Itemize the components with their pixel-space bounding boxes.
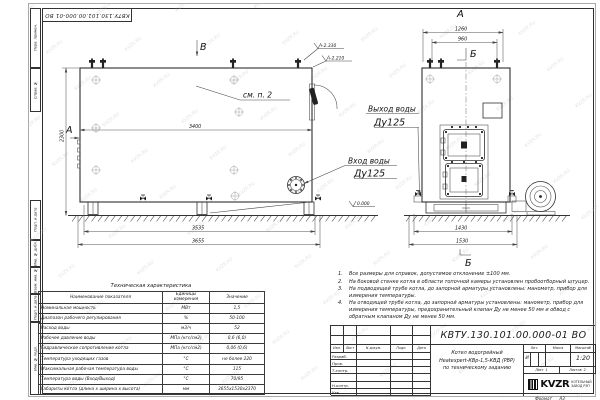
sign-row-cell — [413, 389, 431, 396]
note-ref-text: см. п. 2 — [243, 91, 272, 100]
revision-cell — [391, 336, 413, 346]
sign-row-cell — [357, 382, 391, 389]
tech-table-rows: Номинальная мощностьМВт1,5Диапазон рабоч… — [39, 303, 265, 395]
col-header-units: Единицы измерения — [163, 291, 210, 303]
lit-cell-3 — [539, 352, 546, 367]
note-item: 3. На подводящей трубе котла, до запорно… — [338, 286, 594, 299]
front-view-title: А — [456, 9, 464, 20]
note-item: 2. На боковой стенке котла в области топ… — [338, 279, 594, 286]
sign-row-cell — [357, 360, 391, 367]
rev-header-list: Лист — [344, 345, 357, 353]
dim-1430-text: 1430 — [455, 225, 467, 231]
revision-cell — [331, 326, 344, 336]
table-row: Гидравлическое сопротивление котлаМПа (к… — [39, 344, 265, 354]
dim-2300-text: 2300 — [60, 130, 66, 142]
mass-value — [546, 352, 571, 367]
revision-cell — [344, 336, 357, 346]
dim-3400-text: 3400 — [189, 124, 201, 130]
sign-row-cell — [391, 353, 413, 360]
sign-row-cell — [357, 374, 391, 381]
table-cell: 3655х1530х2370 — [210, 385, 265, 395]
note-text: На подводящей трубе котла, до запорной а… — [349, 286, 594, 299]
sign-row-cell — [357, 353, 391, 360]
table-row: Рабочее давление водыМПа (кгс/см2)0,6 (6… — [39, 334, 265, 344]
note-number: 1. — [338, 271, 349, 278]
table-cell: Номинальная мощность — [39, 303, 163, 313]
sheet-label: Лист — [535, 368, 543, 372]
table-cell: Температура воды (Вход/Выход) — [39, 374, 163, 384]
table-cell: Максимальная рабочая температура воды — [39, 364, 163, 374]
table-row: Диапазон рабочего регулирования%50-100 — [39, 313, 265, 323]
revision-cell — [413, 326, 431, 336]
table-cell: Диапазон рабочего регулирования — [39, 313, 163, 323]
sign-row-label: Пров. — [331, 360, 357, 367]
outlet-label: Выход воды — [368, 105, 416, 114]
marker-b-label: В — [200, 42, 207, 53]
lit-mass-scale-values: И 1:20 — [524, 352, 596, 367]
notes-list: 1. Все размеры для справок, допустимое о… — [338, 271, 594, 321]
sign-row-cell — [413, 360, 431, 367]
tech-table-title: Техническая характеристика — [38, 283, 264, 289]
table-row: Максимальная рабочая температура воды°С1… — [39, 364, 265, 374]
table-cell: °С — [163, 374, 210, 384]
sheet-row: Лист 1 Листов 2 — [524, 367, 596, 374]
drawing-sheet: Перв. примен. Справ. № Подп. и дата Инв.… — [0, 0, 600, 400]
table-cell: Расход воды — [39, 323, 163, 333]
note-item: 4. На отводящей трубе котла, до запорной… — [338, 300, 594, 320]
note-item: 1. Все размеры для справок, допустимое о… — [338, 271, 594, 278]
lit-mass-scale-header: Лит. Масса Масштаб — [524, 345, 596, 352]
company-cell: KVZR КОТЕЛЬНЫЙ ЗАВОД РЭП — [524, 374, 596, 397]
drawing-title: Котел водогрейный Heatexpert-КВр-1,5-КВД… — [431, 345, 524, 396]
revision-cell — [357, 336, 391, 346]
tech-table: Техническая характеристика Наименование … — [38, 283, 264, 395]
sign-row-cell — [391, 367, 413, 374]
rev-header-podp: Подп. — [391, 345, 413, 353]
col-header-value: Значение — [210, 291, 265, 303]
note-text: Все размеры для справок, допустимое откл… — [349, 271, 594, 278]
company-line2: ЗАВОД РЭП — [571, 385, 591, 389]
sign-row-label: Разраб. — [331, 353, 357, 360]
scale-value: 1:20 — [571, 352, 596, 367]
note-number: 2. — [338, 279, 349, 286]
table-cell: Рабочее давление воды — [39, 334, 163, 344]
title-block-right: Лит. Масса Масштаб И 1:20 Лист 1 Листов … — [524, 345, 596, 396]
kvzr-logo-icon — [528, 379, 538, 390]
table-row: Расход водым3/ч52 — [39, 323, 265, 333]
sign-row-cell — [391, 382, 413, 389]
dim-3535-text: 3535 — [192, 225, 204, 231]
title-block-doc-number: КВТУ.130.101.00.000-01 ВО — [431, 326, 596, 345]
sign-row-cell — [413, 353, 431, 360]
sign-row-cell — [357, 367, 391, 374]
sheet-value: 1 — [546, 368, 548, 372]
table-cell: МПа (кгс/см2) — [163, 334, 210, 344]
format-value: А3 — [559, 396, 565, 400]
sign-row-cell — [413, 367, 431, 374]
drawing-title-line2: Heatexpert-КВр-1,5-КВД (РВР) — [439, 358, 515, 366]
table-cell: 115 — [210, 364, 265, 374]
drawing-title-line1: Котел водогрейный — [451, 350, 502, 358]
revision-cell — [344, 326, 357, 336]
sheets-value: 2 — [584, 368, 586, 372]
rev-header-izm: Изм. — [331, 345, 344, 353]
company-name: КОТЕЛЬНЫЙ ЗАВОД РЭП — [571, 381, 591, 389]
drawing-title-line3: по техническому заданию — [443, 365, 511, 373]
signature-grid: Разраб.Пров.Т.контр.Н.контр.Утв. — [331, 353, 431, 397]
section-b-top-label: Б — [470, 49, 477, 60]
sign-row-label — [331, 374, 357, 381]
table-cell: °С — [163, 354, 210, 364]
rev-header-data: Дата — [413, 345, 431, 353]
note-number: 4. — [338, 300, 349, 320]
sign-row-cell — [391, 360, 413, 367]
table-cell: МВт — [163, 303, 210, 313]
level-2210-text: +2.210 — [328, 56, 344, 62]
dim-1530-text: 1530 — [456, 238, 468, 244]
table-cell: не более 220 — [210, 354, 265, 364]
inlet-label: Вход воды — [348, 157, 390, 166]
table-cell: 0,06 (0,6) — [210, 344, 265, 354]
level-2330-text: +2.330 — [320, 43, 336, 49]
rev-header-ndocum: N докум. — [357, 345, 391, 353]
sign-row-cell — [391, 389, 413, 396]
sign-row-cell — [413, 374, 431, 381]
lit-value: И — [524, 352, 531, 367]
table-cell: 1,5 — [210, 303, 265, 313]
sign-row-label: Н.контр. — [331, 382, 357, 389]
sign-row-cell — [391, 374, 413, 381]
dim-3655-text: 3655 — [192, 238, 204, 244]
revision-cell — [413, 336, 431, 346]
revision-cell — [331, 336, 344, 346]
table-row: Номинальная мощностьМВт1,5 — [39, 303, 265, 313]
table-cell: °С — [163, 364, 210, 374]
table-cell: 70/95 — [210, 374, 265, 384]
section-b-bottom-label: Б — [465, 258, 472, 269]
sign-row-cell — [357, 389, 391, 396]
lit-cell-2 — [531, 352, 538, 367]
note-text: На боковой стенке котла в области топочн… — [349, 279, 594, 286]
table-header-row: Наименование показателя Единицы измерени… — [39, 291, 265, 303]
sign-row-label: Т.контр. — [331, 367, 357, 374]
col-header-name: Наименование показателя — [39, 291, 163, 303]
title-block: КВТУ.130.101.00.000-01 ВО Изм. Лист N до… — [330, 325, 595, 395]
inlet-size: Ду125 — [353, 169, 385, 180]
table-cell: Габариты котла (длина х ширина х высота) — [39, 385, 163, 395]
table-cell: 52 — [210, 323, 265, 333]
format-note: Формат А3 — [505, 396, 595, 400]
table-cell: 0,6 (6,0) — [210, 334, 265, 344]
table-cell: мм — [163, 385, 210, 395]
sign-row-cell — [413, 382, 431, 389]
table-row: Температура уходящих газов°Сне более 220 — [39, 354, 265, 364]
revision-cell — [357, 326, 391, 336]
table-cell: 50-100 — [210, 313, 265, 323]
outlet-size: Ду125 — [373, 118, 405, 129]
table-cell: Температура уходящих газов — [39, 354, 163, 364]
revision-grid — [331, 326, 431, 345]
sheets-label: Листов — [569, 368, 581, 372]
table-row: Габариты котла (длина х ширина х высота)… — [39, 385, 265, 395]
level-zero-text: 0.000 — [357, 201, 370, 207]
table-cell: % — [163, 313, 210, 323]
table-cell: м3/ч — [163, 323, 210, 333]
dim-960-text: 960 — [458, 37, 467, 43]
format-label: Формат — [535, 396, 552, 400]
revision-cell — [391, 326, 413, 336]
table-cell: Гидравлическое сопротивление котла — [39, 344, 163, 354]
table-cell: МПа (кгс/см2) — [163, 344, 210, 354]
revision-header-row: Изм. Лист N докум. Подп. Дата — [331, 345, 431, 353]
kvzr-logo-text: KVZR — [540, 380, 569, 390]
dim-1260-text: 1260 — [455, 27, 467, 33]
table-row: Температура воды (Вход/Выход)°С70/95 — [39, 374, 265, 384]
note-text: На отводящей трубе котла, до запорной ар… — [349, 300, 594, 320]
sign-row-label: Утв. — [331, 389, 357, 396]
note-number: 3. — [338, 286, 349, 299]
